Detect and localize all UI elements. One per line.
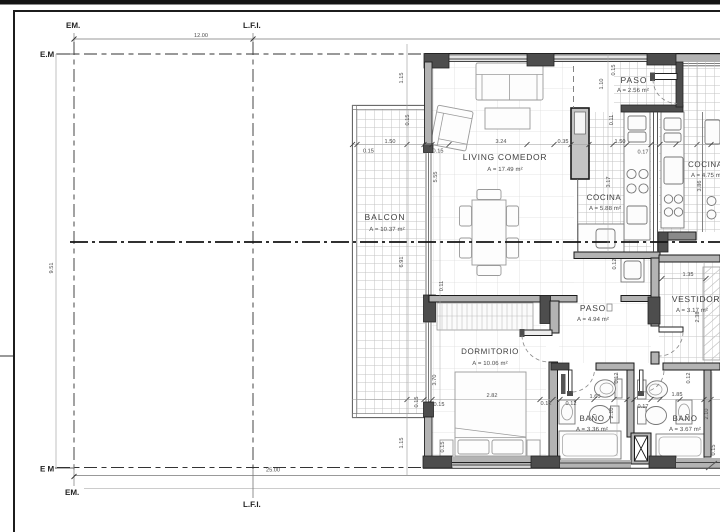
svg-text:9.51: 9.51 xyxy=(49,263,55,274)
svg-text:0.11: 0.11 xyxy=(609,115,615,125)
svg-text:LIVING COMEDOR: LIVING COMEDOR xyxy=(463,152,547,162)
svg-text:3.70: 3.70 xyxy=(432,375,438,386)
svg-text:0.15: 0.15 xyxy=(434,402,445,408)
svg-text:A = 10.37 m²: A = 10.37 m² xyxy=(369,226,404,233)
svg-text:0.11: 0.11 xyxy=(439,281,445,291)
svg-text:6.91: 6.91 xyxy=(399,257,405,268)
svg-text:A = 2.56 m²: A = 2.56 m² xyxy=(617,87,649,94)
svg-text:25.00: 25.00 xyxy=(266,468,280,474)
svg-text:A = 4.94 m²: A = 4.94 m² xyxy=(577,316,609,323)
svg-text:0.15: 0.15 xyxy=(363,149,374,155)
svg-text:BAÑO: BAÑO xyxy=(672,413,697,423)
svg-text:0.12: 0.12 xyxy=(612,259,618,270)
svg-text:3.17: 3.17 xyxy=(606,177,612,188)
svg-text:0.15: 0.15 xyxy=(440,442,446,453)
svg-text:0.35: 0.35 xyxy=(558,139,569,145)
svg-text:0.17: 0.17 xyxy=(638,404,649,410)
svg-text:0.12: 0.12 xyxy=(541,401,552,407)
svg-text:0.15: 0.15 xyxy=(405,115,411,126)
svg-text:3.24: 3.24 xyxy=(496,139,507,145)
svg-text:3.86: 3.86 xyxy=(697,181,703,192)
svg-text:A = 10.06 m²: A = 10.06 m² xyxy=(472,360,507,367)
svg-text:0.15: 0.15 xyxy=(433,149,444,155)
svg-text:2.82: 2.82 xyxy=(487,393,498,399)
svg-text:BAÑO: BAÑO xyxy=(579,413,604,423)
svg-text:0.12: 0.12 xyxy=(566,401,577,407)
svg-text:2.10: 2.10 xyxy=(609,408,615,419)
svg-text:VESTIDOR: VESTIDOR xyxy=(672,294,720,304)
svg-text:A = 17.49 m²: A = 17.49 m² xyxy=(487,166,522,173)
svg-text:A = 3.17 m²: A = 3.17 m² xyxy=(676,307,708,314)
svg-text:0.15: 0.15 xyxy=(611,65,617,76)
svg-text:0.15: 0.15 xyxy=(414,397,420,408)
svg-text:5.55: 5.55 xyxy=(433,172,439,183)
svg-text:1.50: 1.50 xyxy=(615,139,626,145)
svg-text:0.15: 0.15 xyxy=(711,445,717,456)
svg-text:A = 4.75 m²: A = 4.75 m² xyxy=(691,172,720,179)
svg-text:1.60: 1.60 xyxy=(590,394,601,400)
svg-text:L.F.I.: L.F.I. xyxy=(243,21,261,30)
svg-text:A = 5.88 m²: A = 5.88 m² xyxy=(589,205,621,212)
svg-text:1.50: 1.50 xyxy=(385,139,396,145)
svg-text:1.85: 1.85 xyxy=(672,392,683,398)
svg-text:EM.: EM. xyxy=(65,488,79,497)
svg-text:1.15: 1.15 xyxy=(399,438,405,449)
svg-text:1.10: 1.10 xyxy=(599,79,605,90)
svg-text:COCINA: COCINA xyxy=(688,160,720,169)
svg-text:1.15: 1.15 xyxy=(399,73,405,84)
svg-text:E.M: E.M xyxy=(40,50,55,59)
svg-text:COCINA: COCINA xyxy=(587,193,622,202)
svg-text:DORMITORIO: DORMITORIO xyxy=(461,347,519,356)
svg-text:PASO: PASO xyxy=(621,75,648,85)
svg-text:PASO: PASO xyxy=(580,303,606,313)
svg-text:2.10: 2.10 xyxy=(704,409,710,420)
svg-text:A = 3.36 m²: A = 3.36 m² xyxy=(576,426,608,433)
svg-text:2.38: 2.38 xyxy=(695,312,701,323)
svg-text:EM.: EM. xyxy=(66,21,80,30)
svg-text:A = 3.67 m²: A = 3.67 m² xyxy=(669,426,701,433)
svg-text:12.00: 12.00 xyxy=(194,33,208,39)
svg-text:1.35: 1.35 xyxy=(683,272,694,278)
svg-text:L.F.I.: L.F.I. xyxy=(243,500,261,509)
svg-text:E M: E M xyxy=(40,465,55,474)
svg-text:0.12: 0.12 xyxy=(614,373,620,384)
svg-text:0.17: 0.17 xyxy=(638,150,649,156)
svg-text:BALCON: BALCON xyxy=(365,212,406,222)
svg-text:0.12: 0.12 xyxy=(686,373,692,384)
